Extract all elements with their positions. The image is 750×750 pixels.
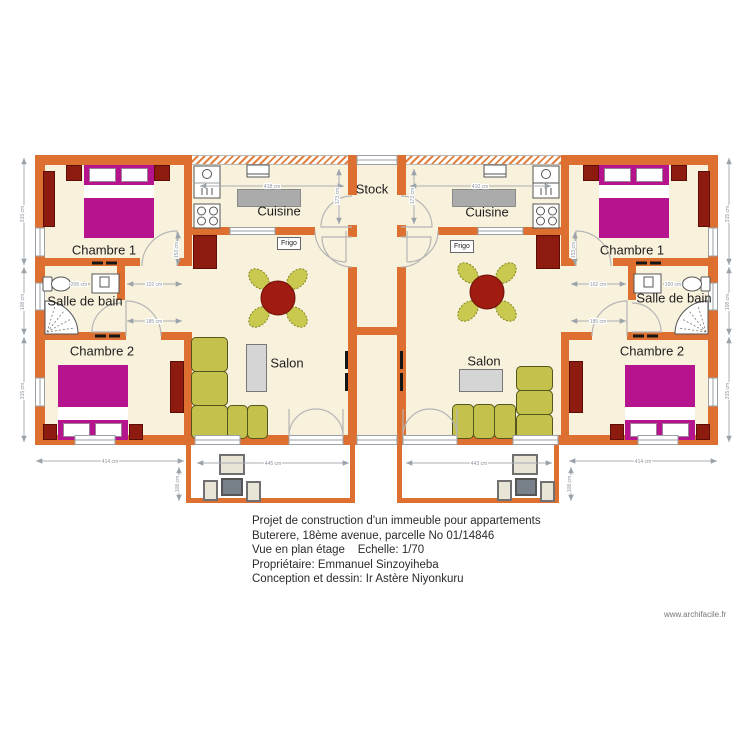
plan-overlay: 315 cm 108 cm 315 cm 315 cm 108 cm 315 c…	[0, 0, 750, 750]
svg-text:418 cm: 418 cm	[264, 184, 280, 190]
svg-text:108 cm: 108 cm	[175, 476, 181, 492]
door-threshold	[403, 436, 457, 445]
room-label-chambre1-right: Chambre 1	[600, 243, 664, 258]
title-block: Projet de construction d'un immeuble pou…	[252, 514, 541, 587]
fridge-label-right: Frigo	[450, 240, 474, 253]
svg-text:108 cm: 108 cm	[567, 476, 573, 492]
title-line: Projet de construction d'un immeuble pou…	[252, 514, 541, 529]
svg-text:173 cm: 173 cm	[335, 188, 341, 204]
door-sdb-right	[632, 303, 661, 332]
room-label-chambre2-left: Chambre 2	[70, 344, 134, 359]
room-label-sdb-right: Salle de bain	[636, 291, 711, 306]
window	[513, 436, 558, 445]
wall-cabinet-right	[484, 165, 506, 177]
svg-text:410 cm: 410 cm	[472, 184, 488, 190]
svg-text:315 cm: 315 cm	[20, 383, 26, 399]
door-stock-hall-right	[401, 237, 431, 267]
door-stock-cuisine-right	[401, 196, 432, 227]
svg-text:108 cm: 108 cm	[725, 294, 731, 310]
watermark: www.archifacile.fr	[664, 610, 726, 619]
room-label-sdb-left: Salle de bain	[47, 294, 122, 309]
door-stock-hall-left	[322, 237, 352, 267]
room-label-salon-right: Salon	[467, 354, 500, 369]
dining-table-left	[245, 265, 311, 331]
svg-text:414 cm: 414 cm	[102, 459, 118, 465]
toilet-right	[683, 277, 711, 291]
svg-text:414 cm: 414 cm	[635, 459, 651, 465]
window	[36, 378, 45, 406]
svg-text:153 cm: 153 cm	[571, 242, 577, 258]
svg-text:102 cm: 102 cm	[146, 282, 162, 288]
kitchen-sink-right	[533, 166, 559, 198]
window	[195, 436, 240, 445]
stove-left	[194, 204, 220, 228]
room-label-salon-left: Salon	[270, 356, 303, 371]
door-chambre1-left	[142, 231, 177, 266]
room-label-chambre2-right: Chambre 2	[620, 344, 684, 359]
title-line: Vue en plan étage Echelle: 1/70	[252, 543, 541, 558]
washbasin-left	[92, 274, 119, 293]
window	[75, 436, 115, 445]
svg-text:315 cm: 315 cm	[20, 206, 26, 222]
dining-table-right	[454, 259, 520, 325]
title-line: Propriétaire: Emmanuel Sinzoyiheba	[252, 558, 541, 573]
vent-marks	[92, 263, 661, 391]
window	[230, 228, 275, 235]
title-line: Conception et dessin: Ir Astère Niyonkur…	[252, 572, 541, 587]
window	[709, 228, 718, 256]
svg-text:108 cm: 108 cm	[20, 294, 26, 310]
svg-text:315 cm: 315 cm	[725, 383, 731, 399]
dimension-labels: 315 cm 108 cm 315 cm 315 cm 108 cm 315 c…	[20, 184, 731, 492]
double-door-salon-left	[289, 409, 343, 436]
stove-right	[533, 204, 559, 228]
shower-right	[675, 301, 708, 334]
double-door-salon-right	[403, 409, 457, 436]
kitchen-sink-left	[194, 166, 220, 198]
window	[36, 228, 45, 256]
dimension-lines	[24, 158, 729, 501]
svg-text:100 cm: 100 cm	[665, 282, 681, 288]
room-label-cuisine-right: Cuisine	[465, 205, 508, 220]
svg-text:102 cm: 102 cm	[590, 282, 606, 288]
svg-text:205 cm: 205 cm	[71, 282, 87, 288]
door-threshold	[289, 436, 343, 445]
door-threshold	[357, 436, 397, 445]
window	[638, 436, 678, 445]
toilet-left	[43, 277, 71, 291]
svg-text:443 cm: 443 cm	[471, 461, 487, 467]
floor-plan-canvas: 315 cm 108 cm 315 cm 315 cm 108 cm 315 c…	[0, 0, 750, 750]
fridge-label-left: Frigo	[277, 237, 301, 250]
title-line: Buterere, 18ème avenue, parcelle No 01/1…	[252, 529, 541, 544]
wall-cabinet-left	[247, 165, 269, 177]
room-label-chambre1-left: Chambre 1	[72, 243, 136, 258]
svg-text:173 cm: 173 cm	[410, 188, 416, 204]
svg-text:445 cm: 445 cm	[265, 461, 281, 467]
svg-text:185 cm: 185 cm	[590, 319, 606, 325]
window	[357, 156, 397, 165]
room-label-stock: Stock	[356, 182, 389, 197]
window	[478, 228, 523, 235]
room-label-cuisine-left: Cuisine	[257, 204, 300, 219]
svg-text:315 cm: 315 cm	[725, 206, 731, 222]
window	[709, 378, 718, 406]
svg-text:153 cm: 153 cm	[174, 242, 180, 258]
svg-text:185 cm: 185 cm	[146, 319, 162, 325]
